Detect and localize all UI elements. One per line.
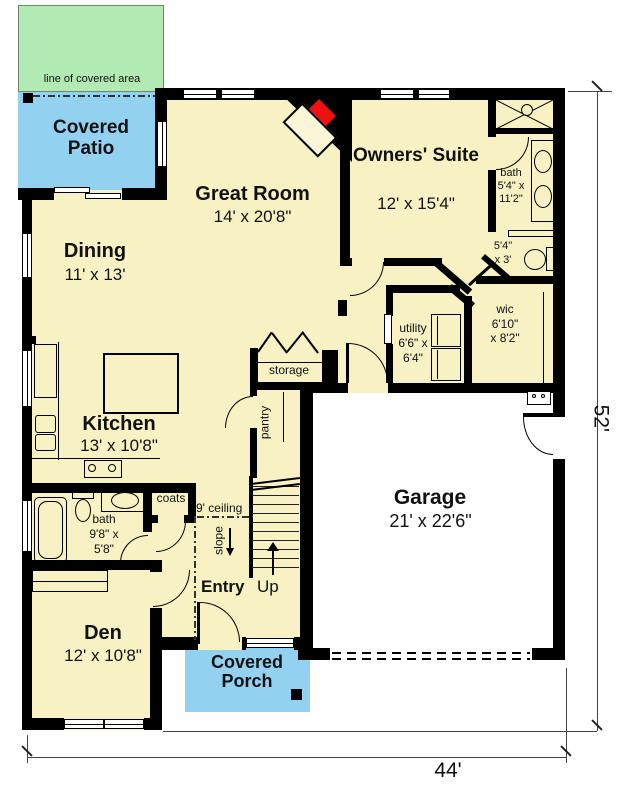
garage-entry-door-opening xyxy=(348,383,388,393)
window xyxy=(64,719,104,729)
dimension-ext-top xyxy=(568,91,612,92)
garage-label: Garage xyxy=(365,487,495,510)
kitchen-label: Kitchen xyxy=(64,414,174,436)
utility-dims-2: 6'4" xyxy=(389,352,437,365)
toilet-bowl xyxy=(524,249,546,270)
sink-faucet-dot xyxy=(541,394,545,398)
wall-patio-south-b xyxy=(122,188,167,200)
patio-roof-line xyxy=(33,95,161,97)
overall-width-dim: 44' xyxy=(424,760,472,783)
entry-label: Entry xyxy=(201,578,244,596)
toilet-tank xyxy=(72,489,94,499)
wic-label: wic xyxy=(478,303,532,316)
utility-dims-1: 6'6" x xyxy=(389,337,437,350)
burner xyxy=(108,464,116,472)
wall-west-1 xyxy=(22,200,32,233)
shower-drain xyxy=(521,104,533,116)
owners-suite-dims: 12' x 15'4" xyxy=(352,195,480,213)
stair-up-arrow-head xyxy=(267,542,279,551)
entry-up-label: Up xyxy=(257,578,279,596)
dimension-line-bottom xyxy=(27,757,566,758)
wall-toilet-south xyxy=(476,276,565,284)
coats-label: coats xyxy=(151,492,191,505)
makeup-counter xyxy=(508,230,555,237)
ceiling-break-line-v xyxy=(194,516,196,640)
garage-door-line-1 xyxy=(332,652,530,654)
window xyxy=(22,500,32,552)
garage-utility-sink xyxy=(527,391,551,405)
main-bath-dims-1: 9'8" x xyxy=(83,528,125,541)
kitchen-dims: 13' x 10'8" xyxy=(64,437,174,455)
wic-dims-2: x 8'2" xyxy=(478,332,532,345)
utility-label: utility xyxy=(389,322,437,335)
ceiling-height-note: 9' ceiling xyxy=(196,502,242,515)
sink xyxy=(534,150,552,173)
slope-arrow-shaft xyxy=(229,528,231,550)
window xyxy=(22,233,32,278)
window xyxy=(246,638,294,648)
dining-dims: 11' x 13' xyxy=(45,266,145,284)
sink xyxy=(111,492,139,509)
owners-bath-dims-2: 11'2" xyxy=(491,194,531,206)
dimension-ext-bottom-right xyxy=(163,731,597,732)
garage-door-line-2 xyxy=(332,658,530,660)
shower-head xyxy=(556,110,562,118)
kitchen-sink xyxy=(35,434,56,451)
wall-pantry-left-b xyxy=(250,428,257,478)
wall-patio-south-a xyxy=(18,188,54,200)
toilet-tank xyxy=(546,247,558,271)
dining-label: Dining xyxy=(45,241,145,263)
slope-label: slope xyxy=(213,517,226,563)
great-room-label: Great Room xyxy=(175,184,330,206)
window xyxy=(418,89,450,99)
covered-area-note: line of covered area xyxy=(24,74,160,86)
window xyxy=(183,89,217,99)
burner xyxy=(88,464,96,472)
overall-depth-dim: 52' xyxy=(589,395,612,441)
wic-dims-1: 6'10" xyxy=(478,318,532,331)
dryer-front-line xyxy=(437,350,438,379)
counter-edge-line xyxy=(32,458,160,459)
floor-plan: line of covered area Covered Patio Cover… xyxy=(0,0,625,786)
counter-edge-line xyxy=(58,342,59,460)
slope-arrow-head xyxy=(226,548,234,556)
kitchen-sink xyxy=(35,415,56,433)
owners-suite-label: Owners' Suite xyxy=(352,146,480,167)
garage-dims: 21' x 22'6" xyxy=(363,512,498,531)
bathtub-inner xyxy=(38,501,63,559)
wall-garage-south-b xyxy=(532,648,565,660)
window xyxy=(221,89,255,99)
dimension-tick xyxy=(591,80,602,91)
sink xyxy=(534,185,552,208)
window xyxy=(380,89,414,99)
wall-west-4 xyxy=(22,552,32,730)
patio-column xyxy=(23,93,33,103)
wall-hall-stub xyxy=(338,300,347,316)
refrigerator xyxy=(34,344,57,398)
washer-front-line xyxy=(437,316,438,345)
kitchen-island xyxy=(103,353,179,414)
window xyxy=(22,350,32,407)
wall-shower-south xyxy=(488,128,565,134)
den-dims: 12' x 10'8" xyxy=(50,647,156,665)
wall-kitchen-stub xyxy=(22,336,36,344)
staircase xyxy=(252,486,299,576)
great-room-dims: 14' x 20'8" xyxy=(175,208,330,226)
main-bath-label: bath xyxy=(85,513,123,526)
sliding-door-panel xyxy=(85,193,121,199)
owners-bath-label: bath xyxy=(491,168,531,180)
wall-right-lower xyxy=(553,459,565,660)
wall-den-south-a xyxy=(22,718,64,730)
pantry-shelf-line xyxy=(283,392,284,442)
toilet-room-dims-1: 5'4" xyxy=(487,241,519,253)
owners-bath-dims-1: 5'4" x xyxy=(489,181,533,193)
wall-wic-west xyxy=(464,296,472,390)
window xyxy=(157,121,167,167)
wic-shelf-line xyxy=(543,292,544,384)
wall-utility-west-a xyxy=(386,285,393,316)
covered-patio-label: Covered Patio xyxy=(33,118,149,159)
toilet-room-dims-2: x 3' xyxy=(487,255,519,267)
covered-porch-label: Covered Porch xyxy=(194,653,300,692)
window xyxy=(104,719,144,729)
den-closet-shelf-line xyxy=(32,581,108,582)
sink-faucet-dot xyxy=(532,394,536,398)
wall-garage-left xyxy=(300,383,313,650)
stair-up-arrow-shaft xyxy=(272,549,274,575)
garage-side-door-opening xyxy=(553,417,565,459)
storage-label: storage xyxy=(262,364,316,377)
pantry-label: pantry xyxy=(259,392,272,452)
wall-garage-north-a xyxy=(300,383,348,393)
main-bath-dims-2: 5'8" xyxy=(85,543,123,556)
den-label: Den xyxy=(53,623,153,645)
